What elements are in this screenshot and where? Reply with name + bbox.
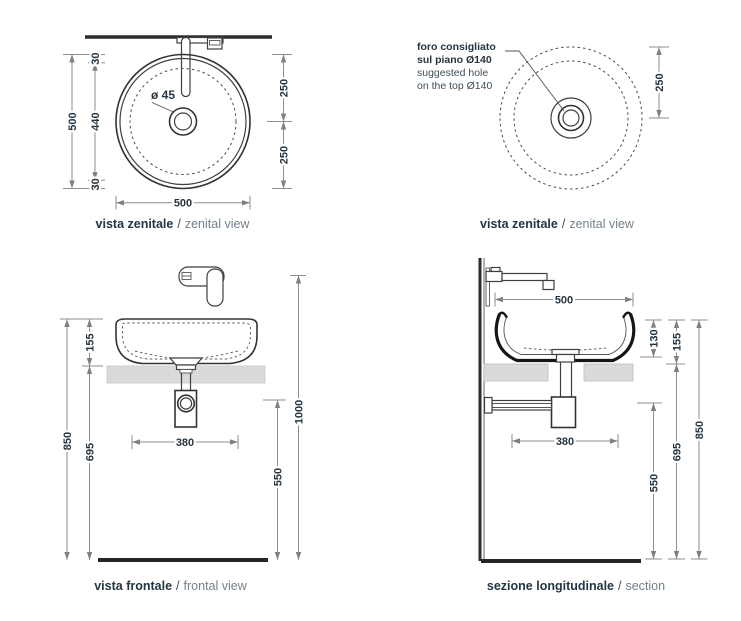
caption-title-en: zenital view (569, 216, 634, 232)
dim-label-right-lower: 250 (278, 146, 290, 164)
dim-label-drain-height: 550 (272, 468, 284, 486)
note-line-2: sul piano Ø140 (417, 54, 496, 67)
caption-title-en: section (625, 578, 665, 594)
technical-drawing-canvas: ø 45 500 30 440 30 250 250 500 (0, 0, 741, 621)
dim-label-right-upper: 250 (278, 79, 290, 97)
note-line-3: suggested hole (417, 67, 496, 80)
dim-label-basin-height-section: 155 (671, 333, 683, 351)
zenital-view-right: 250 (500, 47, 669, 189)
zenital-view-left: ø 45 500 30 440 30 250 250 500 (63, 37, 292, 210)
dim-label-inner-height: 440 (90, 112, 102, 130)
faucet-plan (177, 38, 223, 97)
caption-separator: / (618, 578, 621, 594)
basin-dashed-outline (500, 47, 642, 189)
caption-title-it: vista frontale (94, 578, 172, 594)
caption-title-it: sezione longitudinale (487, 578, 614, 594)
caption-section: sezione longitudinale / section (451, 578, 701, 594)
frontal-view: 850 155 695 380 1000 550 (60, 267, 306, 560)
countertop-section-right (584, 364, 633, 381)
faucet-section (486, 268, 554, 307)
drain-diameter-label: ø 45 (151, 88, 175, 102)
drain-leader-line (152, 103, 174, 113)
dim-label-center-offset: 250 (654, 73, 666, 91)
caption-zenital-left: vista zenitale / zenital view (60, 216, 285, 232)
dim-label-under-counter-section: 695 (671, 443, 683, 461)
caption-title-it: vista zenitale (96, 216, 174, 232)
dim-label-total-height: 500 (67, 112, 79, 130)
technical-drawing-sheet: ø 45 500 30 440 30 250 250 500 (0, 0, 741, 621)
dim-label-offset-top: 30 (90, 52, 102, 64)
dim-label-wall-height-section: 850 (694, 421, 706, 439)
dim-label-offset-bottom: 30 (90, 178, 102, 190)
drain-fitting-inner (563, 110, 579, 126)
siphon-section (552, 397, 576, 428)
caption-separator: / (562, 216, 565, 232)
countertop-section-left (484, 364, 548, 381)
note-line-1: foro consigliato (417, 41, 496, 54)
note-leader-line (505, 51, 564, 111)
dim-label-width: 500 (174, 198, 192, 210)
drain-waste (177, 365, 196, 370)
caption-frontal: vista frontale / frontal view (53, 578, 288, 594)
caption-title-en: frontal view (184, 578, 247, 594)
drain-hole-inner (175, 113, 192, 130)
dim-label-drain-height-section: 550 (648, 474, 660, 492)
dim-label-drain-spacing-section: 380 (556, 436, 574, 448)
caption-title-it: vista zenitale (480, 216, 558, 232)
section-view: 500 130 155 695 850 550 380 (480, 258, 708, 561)
faucet-front (179, 267, 224, 306)
dim-label-width-section: 500 (555, 294, 573, 306)
basin-dashed-inner (514, 61, 628, 175)
dim-label-drain-spacing: 380 (176, 437, 194, 449)
dim-label-basin-height: 155 (84, 333, 96, 351)
drain-hole (170, 108, 197, 135)
dim-label-inner-depth: 130 (648, 329, 660, 347)
dim-label-under-counter: 695 (84, 443, 96, 461)
caption-title-en: zenital view (185, 216, 250, 232)
note-line-4: on the top Ø140 (417, 80, 496, 93)
pipe-wall-flange (485, 398, 493, 414)
dim-label-faucet-height: 1000 (293, 400, 305, 424)
caption-zenital-right: vista zenitale / zenital view (442, 216, 672, 232)
drain-waste-section (552, 350, 579, 355)
caption-separator: / (177, 216, 180, 232)
dim-label-wall-height: 850 (62, 432, 74, 450)
siphon-outlet-pipe (492, 401, 552, 411)
suggested-hole-note: foro consigliato sul piano Ø140 suggeste… (417, 41, 496, 93)
drain-funnel (170, 358, 202, 365)
suggested-hole-circle (551, 98, 591, 138)
caption-separator: / (176, 578, 179, 594)
